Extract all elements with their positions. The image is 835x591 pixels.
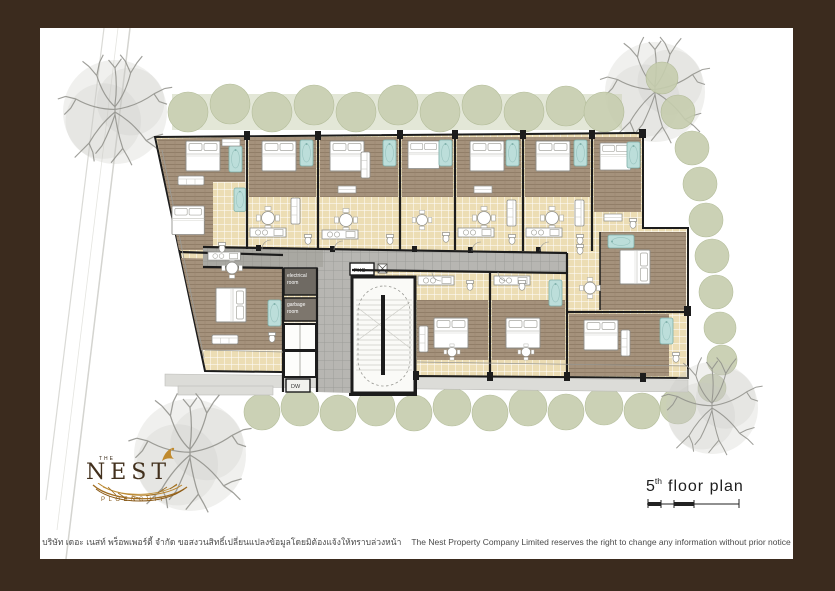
bird-icon bbox=[158, 445, 180, 465]
tree-top-left bbox=[58, 55, 172, 166]
electrical-room-label-2: room bbox=[287, 280, 298, 286]
stair-core bbox=[352, 277, 415, 393]
scale-bar bbox=[646, 498, 742, 510]
logo-name-text: NEST bbox=[86, 463, 206, 483]
garbage-room-label-2: room bbox=[287, 309, 298, 315]
disclaimer-english: The Nest Property Company Limited reserv… bbox=[411, 537, 790, 547]
dw-room: DW bbox=[286, 379, 310, 392]
framed-floor-plan-sheet: electrical room garbage room bbox=[0, 0, 835, 591]
nest-logo: THE NEST PLOENCHIT bbox=[86, 456, 206, 532]
elevator-2 bbox=[284, 351, 316, 377]
electrical-room-label-1: electrical bbox=[287, 273, 307, 279]
floor-label: floor plan bbox=[668, 478, 744, 495]
dw-label: DW bbox=[291, 384, 301, 390]
disclaimer: บริษัท เดอะ เนสท์ พร็อพเพอร์ตี้ จำกัด ขอ… bbox=[40, 535, 793, 549]
floor-caption: 5thfloor plan bbox=[646, 476, 744, 510]
electrical-room: electrical room bbox=[284, 268, 317, 295]
floor-ordinal: th bbox=[655, 476, 662, 486]
building: electrical room garbage room bbox=[155, 129, 691, 395]
elevator-1 bbox=[284, 324, 316, 350]
hedge-bottom bbox=[244, 387, 696, 431]
nest-weave-icon bbox=[88, 483, 192, 507]
garbage-room: garbage room bbox=[284, 298, 317, 321]
floor-number: 5 bbox=[646, 478, 655, 495]
garbage-room-label-1: garbage bbox=[287, 302, 306, 308]
hedge-top bbox=[168, 84, 624, 132]
core-lobby bbox=[317, 267, 352, 393]
disclaimer-thai: บริษัท เดอะ เนสท์ พร็อพเพอร์ตี้ จำกัด ขอ… bbox=[42, 537, 401, 547]
